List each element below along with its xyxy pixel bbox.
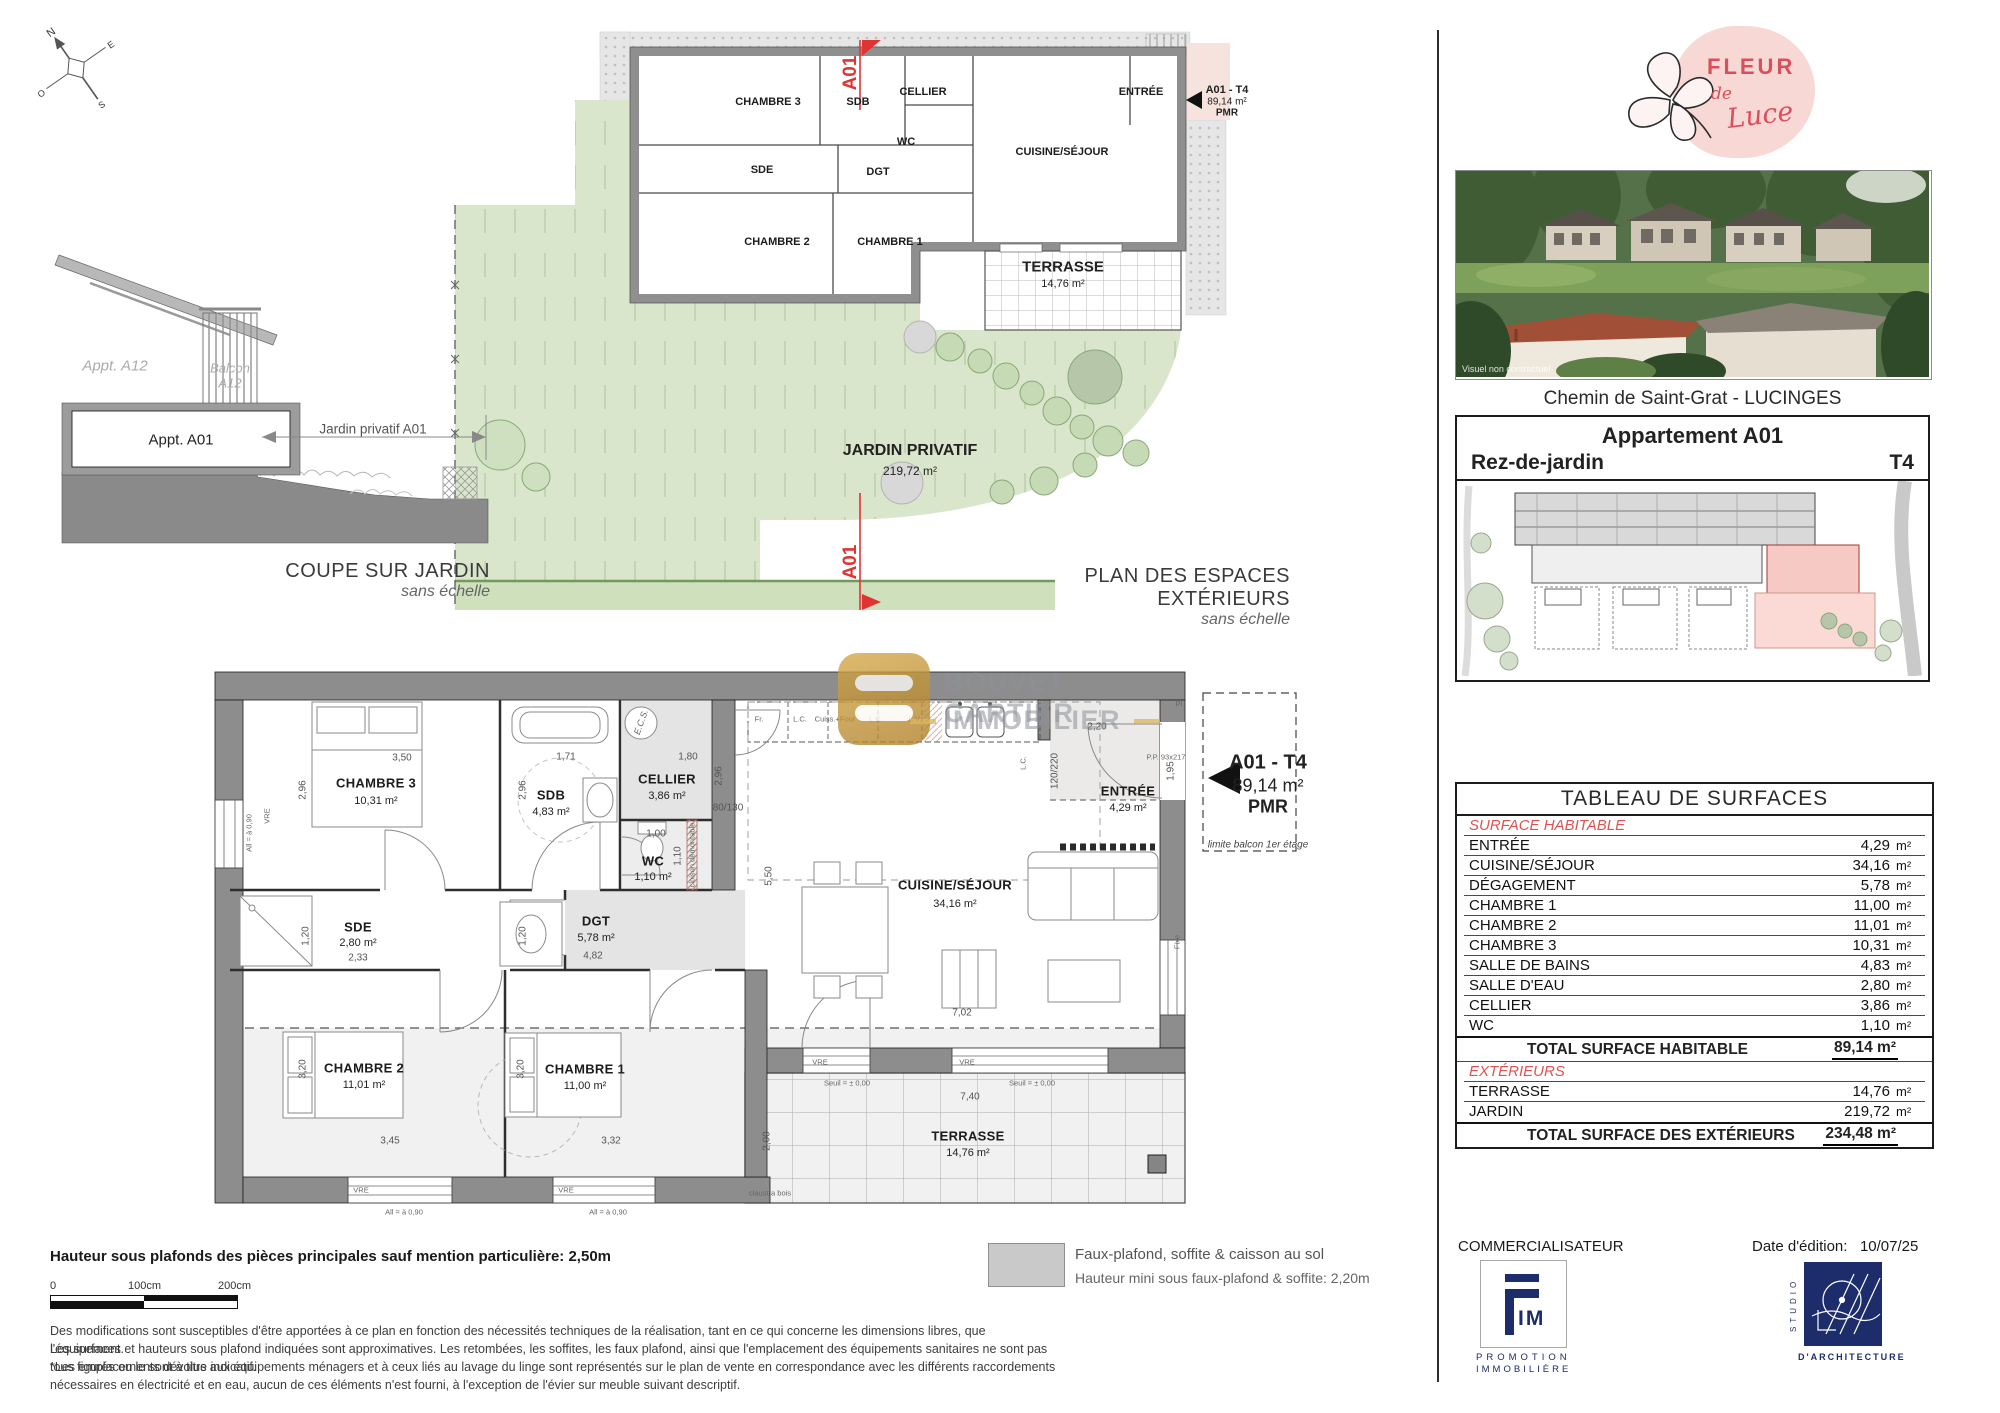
ext-room-entree: ENTRÉE bbox=[1119, 86, 1164, 98]
surface-section-exterieurs: EXTÉRIEURS bbox=[1457, 1061, 1932, 1082]
dim-200: 2,00 bbox=[762, 1131, 773, 1150]
dim-171: 1,71 bbox=[556, 752, 575, 763]
row-value: 10,31 bbox=[1826, 936, 1890, 956]
row-value: 4,83 bbox=[1826, 956, 1890, 976]
table-row: DÉGAGEMENT5,78m² bbox=[1457, 876, 1932, 896]
total-habitable-value: 89,14 m² bbox=[1832, 1039, 1898, 1060]
ext-room-sdb: SDB bbox=[846, 96, 869, 108]
dim-pp: P.P. 93x217 bbox=[1147, 753, 1186, 762]
edition-date-label: Date d'édition: bbox=[1752, 1238, 1847, 1255]
row-value: 14,76 bbox=[1826, 1082, 1890, 1102]
total-habitable-label: TOTAL SURFACE HABITABLE bbox=[1527, 1041, 1832, 1059]
room-label-cellier: CELLIER bbox=[638, 772, 696, 787]
ext-unit-tag-area: 89,14 m² bbox=[1207, 97, 1246, 108]
note-pl: Pl bbox=[1176, 700, 1183, 709]
note-seuil-2: Seuil = ± 0,00 bbox=[1009, 1079, 1055, 1088]
unit-tag-area: 89,14 m² bbox=[1232, 776, 1303, 797]
room-area-sde: 2,80 m² bbox=[339, 937, 376, 949]
dim-296-b: 2,96 bbox=[518, 780, 529, 799]
section-marker-top: A01 bbox=[840, 56, 862, 91]
compass-icon: N E S O bbox=[28, 20, 124, 116]
surface-table-title: TABLEAU DE SURFACES bbox=[1457, 784, 1932, 816]
dim-296-a: 2,96 bbox=[298, 780, 309, 799]
note-allege-ch1: All = à 0,90 bbox=[589, 1208, 627, 1217]
studio-logo bbox=[1804, 1262, 1882, 1346]
height-note: Hauteur sous plafonds des pièces princip… bbox=[50, 1248, 611, 1265]
dim-dgt-482: 4,82 bbox=[583, 951, 602, 962]
room-label-sde: SDE bbox=[344, 920, 372, 935]
legend-sub: Hauteur mini sous faux-plafond & soffite… bbox=[1075, 1270, 1370, 1286]
note-vre-sejour1: VRE bbox=[812, 1058, 827, 1067]
room-label-sdb: SDB bbox=[537, 788, 565, 803]
fim-logo: IM bbox=[1480, 1260, 1567, 1348]
scale-bar: 0 100cm 200cm bbox=[50, 1280, 250, 1306]
title-level: Rez-de-jardin bbox=[1471, 451, 1604, 475]
ext-room-chambre3: CHAMBRE 3 bbox=[735, 96, 800, 108]
surface-section-habitable: SURFACE HABITABLE bbox=[1457, 816, 1932, 836]
row-unit: m² bbox=[1890, 1016, 1926, 1036]
edition-date-value: 10/07/25 bbox=[1860, 1238, 1918, 1255]
fim-im: IM bbox=[1518, 1307, 1545, 1331]
coupe-drawing bbox=[45, 245, 505, 565]
site-plan bbox=[1457, 481, 1924, 676]
row-label: CUISINE/SÉJOUR bbox=[1469, 856, 1826, 876]
studio-vertical: STUDIO bbox=[1789, 1264, 1798, 1346]
row-unit: m² bbox=[1890, 876, 1926, 896]
row-label: CHAMBRE 3 bbox=[1469, 936, 1826, 956]
room-label-chambre3: CHAMBRE 3 bbox=[336, 776, 416, 791]
total-ext-row: TOTAL SURFACE DES EXTÉRIEURS234,48 m² bbox=[1457, 1122, 1932, 1147]
coupe-balcon-line1: Balcon bbox=[210, 361, 250, 376]
row-unit: m² bbox=[1890, 996, 1926, 1016]
row-value: 11,01 bbox=[1826, 916, 1890, 936]
unit-tag-name: A01 - T4 bbox=[1229, 752, 1307, 775]
row-label: ENTRÉE bbox=[1469, 836, 1826, 856]
ext-terrasse-area: 14,76 m² bbox=[1041, 278, 1084, 290]
disclaimer-line4: nécessaires en électricité et en eau, au… bbox=[50, 1376, 1060, 1394]
plan-sheet: N E S O bbox=[0, 0, 2000, 1413]
note-vre-sejour2: VRE bbox=[959, 1058, 974, 1067]
dim-ch1-332: 3,32 bbox=[601, 1136, 620, 1147]
dim-100: 1,00 bbox=[646, 829, 665, 840]
ext-room-dgt: DGT bbox=[866, 166, 889, 178]
room-area-chambre3: 10,31 m² bbox=[354, 795, 397, 807]
surface-table: TABLEAU DE SURFACES SURFACE HABITABLE EN… bbox=[1455, 782, 1934, 1149]
table-row: ENTRÉE4,29m² bbox=[1457, 836, 1932, 856]
ext-room-chambre1: CHAMBRE 1 bbox=[857, 236, 922, 248]
row-value: 2,80 bbox=[1826, 976, 1890, 996]
row-value: 1,10 bbox=[1826, 1016, 1890, 1036]
table-row: CHAMBRE 111,00m² bbox=[1457, 896, 1932, 916]
room-area-dgt: 5,78 m² bbox=[577, 932, 614, 944]
room-label-dgt: DGT bbox=[582, 914, 610, 929]
coupe-caption-title: COUPE SUR JARDIN bbox=[250, 560, 490, 583]
total-ext-value: 234,48 m² bbox=[1823, 1125, 1898, 1146]
disclaimer-line3: *Les emplacements dévolus aux équipement… bbox=[50, 1358, 1060, 1376]
row-label: TERRASSE bbox=[1469, 1082, 1826, 1102]
coupe-appt-a01: Appt. A01 bbox=[148, 432, 213, 449]
note-cloison: cloison démontable bbox=[688, 823, 697, 888]
row-value: 11,00 bbox=[1826, 896, 1890, 916]
unit-tag-pmr: PMR bbox=[1248, 797, 1288, 818]
row-unit: m² bbox=[1890, 836, 1926, 856]
table-row: CHAMBRE 211,01m² bbox=[1457, 916, 1932, 936]
scale-200: 200cm bbox=[218, 1280, 251, 1292]
compass-e: E bbox=[106, 39, 117, 51]
total-habitable-row: TOTAL SURFACE HABITABLE89,14 m² bbox=[1457, 1036, 1932, 1061]
legend-swatch bbox=[988, 1243, 1065, 1287]
row-label: CELLIER bbox=[1469, 996, 1826, 1016]
dim-120220: 120/220 bbox=[1050, 753, 1061, 789]
fim-immobiliere: IMMOBILIÈRE bbox=[1476, 1364, 1570, 1375]
ext-room-sde: SDE bbox=[751, 164, 774, 176]
scale-0: 0 bbox=[50, 1280, 56, 1292]
row-label: SALLE DE BAINS bbox=[1469, 956, 1826, 976]
scale-100: 100cm bbox=[128, 1280, 161, 1292]
watermark-logo bbox=[838, 653, 930, 745]
dim-180: 1,80 bbox=[678, 752, 697, 763]
ext-room-wc: WC bbox=[897, 136, 915, 148]
table-row: TERRASSE14,76m² bbox=[1457, 1082, 1932, 1102]
total-ext-label: TOTAL SURFACE DES EXTÉRIEURS bbox=[1527, 1127, 1823, 1145]
dim-120-b: 1,20 bbox=[518, 926, 529, 945]
dim-702: 7,02 bbox=[952, 1008, 971, 1019]
dim-195: 1,95 bbox=[1166, 761, 1177, 780]
coupe-balcon-line2: A12 bbox=[218, 376, 241, 391]
note-claustra: claustra bois bbox=[749, 1189, 791, 1198]
table-row: CHAMBRE 310,31m² bbox=[1457, 936, 1932, 956]
table-row: SALLE D'EAU2,80m² bbox=[1457, 976, 1932, 996]
dim-320-b: 3,20 bbox=[516, 1059, 527, 1078]
dim-80130: 80/130 bbox=[713, 803, 744, 814]
note-allege-left: All = à 0,90 bbox=[245, 814, 254, 852]
ext-terrasse-label: TERRASSE bbox=[1022, 259, 1104, 276]
brand-name-de: de bbox=[1711, 84, 1732, 104]
row-unit: m² bbox=[1890, 1102, 1926, 1122]
table-row: WC1,10m² bbox=[1457, 1016, 1932, 1036]
commercialisateur-label: COMMERCIALISATEUR bbox=[1458, 1238, 1624, 1255]
dim-ch2-345: 3,45 bbox=[380, 1136, 399, 1147]
kitchen-lc1: L.C. bbox=[793, 715, 807, 724]
dim-296-c: 2,96 bbox=[714, 766, 725, 785]
dim-sde-233: 2,33 bbox=[348, 953, 367, 964]
dim-350: 3,50 bbox=[392, 753, 411, 764]
dim-terrasse-740: 7,40 bbox=[960, 1092, 979, 1103]
note-vre-ch2: VRE bbox=[353, 1186, 368, 1195]
section-marker-bottom: A01 bbox=[840, 545, 862, 580]
row-value: 3,86 bbox=[1826, 996, 1890, 1016]
jardin-privatif-label: JARDIN PRIVATIF bbox=[843, 442, 978, 460]
row-value: 34,16 bbox=[1826, 856, 1890, 876]
room-label-cuisine: CUISINE/SÉJOUR bbox=[898, 878, 1012, 893]
edition-date: Date d'édition: 10/07/25 bbox=[1752, 1238, 1918, 1255]
room-area-chambre1: 11,00 m² bbox=[564, 1080, 607, 1092]
project-address: Chemin de Saint-Grat - LUCINGES bbox=[1455, 388, 1930, 410]
room-area-sdb: 4,83 m² bbox=[532, 806, 569, 818]
jardin-privatif-area: 219,72 m² bbox=[883, 464, 937, 478]
project-photo-render bbox=[1456, 171, 1929, 377]
brand-logo: FLEUR de Luce bbox=[1615, 12, 1830, 162]
compass-o: O bbox=[36, 87, 47, 99]
row-unit: m² bbox=[1890, 976, 1926, 996]
row-value: 5,78 bbox=[1826, 876, 1890, 896]
ext-room-cuisine: CUISINE/SÉJOUR bbox=[1016, 146, 1109, 158]
row-label: CHAMBRE 2 bbox=[1469, 916, 1826, 936]
kitchen-fr: Fr. bbox=[755, 715, 764, 724]
ext-unit-tag-name: A01 - T4 bbox=[1206, 84, 1249, 96]
photo-disclaimer: Visuel non contractuel bbox=[1462, 364, 1550, 374]
note-allege-ch2: All = à 0,90 bbox=[385, 1208, 423, 1217]
note-limite-balcon: limite balcon 1er étage bbox=[1208, 840, 1309, 851]
watermark-line2: IMMOBILIER bbox=[944, 705, 1121, 736]
room-area-chambre2: 11,01 m² bbox=[343, 1079, 386, 1091]
coupe-caption: COUPE SUR JARDIN sans échelle bbox=[250, 560, 490, 601]
row-value: 4,29 bbox=[1826, 836, 1890, 856]
room-label-wc: WC bbox=[642, 854, 664, 869]
table-row: SALLE DE BAINS4,83m² bbox=[1457, 956, 1932, 976]
ext-plan-caption: PLAN DES ESPACES EXTÉRIEURS sans échelle bbox=[1000, 565, 1290, 629]
room-area-cuisine: 34,16 m² bbox=[933, 898, 976, 910]
ext-room-chambre2: CHAMBRE 2 bbox=[744, 236, 809, 248]
room-area-cellier: 3,86 m² bbox=[648, 790, 685, 802]
row-unit: m² bbox=[1890, 956, 1926, 976]
ext-plan-caption-title: PLAN DES ESPACES EXTÉRIEURS bbox=[1000, 565, 1290, 611]
room-area-wc: 1,10 m² bbox=[634, 871, 671, 883]
row-unit: m² bbox=[1890, 896, 1926, 916]
note-fixe: Fixe bbox=[1173, 935, 1182, 949]
project-photo: Visuel non contractuel bbox=[1455, 170, 1932, 380]
legend-title: Faux-plafond, soffite & caisson au sol bbox=[1075, 1246, 1324, 1263]
row-value: 219,72 bbox=[1826, 1102, 1890, 1122]
room-label-entree: ENTRÉE bbox=[1101, 784, 1156, 799]
fim-promotion: PROMOTION bbox=[1476, 1352, 1570, 1363]
row-label: SALLE D'EAU bbox=[1469, 976, 1826, 996]
dim-120-a: 1,20 bbox=[301, 926, 312, 945]
note-lc-tall: L.C. bbox=[1019, 756, 1028, 770]
compass-n: N bbox=[45, 26, 58, 40]
dim-110: 1,10 bbox=[673, 846, 684, 865]
ext-room-cellier: CELLIER bbox=[899, 86, 946, 98]
row-label: JARDIN bbox=[1469, 1102, 1826, 1122]
brand-name-fleur: FLEUR bbox=[1707, 54, 1795, 80]
row-label: DÉGAGEMENT bbox=[1469, 876, 1826, 896]
studio-sub: D'ARCHITECTURE bbox=[1798, 1352, 1888, 1362]
coupe-jardin-dim: Jardin privatif A01 bbox=[319, 422, 426, 437]
title-type: T4 bbox=[1889, 451, 1914, 475]
table-row: JARDIN219,72m² bbox=[1457, 1102, 1932, 1122]
dim-550: 5,50 bbox=[764, 866, 775, 885]
title-apartment: Appartement A01 bbox=[1457, 423, 1928, 449]
table-row: CUISINE/SÉJOUR34,16m² bbox=[1457, 856, 1932, 876]
row-unit: m² bbox=[1890, 1082, 1926, 1102]
ext-plan-caption-scale: sans échelle bbox=[1000, 611, 1290, 629]
row-label: CHAMBRE 1 bbox=[1469, 896, 1826, 916]
note-vre-left: VRE bbox=[263, 808, 272, 823]
exterior-spaces-plan bbox=[440, 25, 1250, 620]
ext-unit-tag-pmr: PMR bbox=[1216, 108, 1238, 119]
note-vre-ch1: VRE bbox=[558, 1186, 573, 1195]
room-area-entree: 4,29 m² bbox=[1109, 802, 1146, 814]
room-area-terrasse: 14,76 m² bbox=[946, 1147, 989, 1159]
compass-s: S bbox=[96, 99, 107, 111]
room-label-terrasse: TERRASSE bbox=[931, 1129, 1004, 1144]
row-unit: m² bbox=[1890, 936, 1926, 956]
dim-320-a: 3,20 bbox=[298, 1059, 309, 1078]
divider bbox=[1437, 30, 1439, 1382]
row-unit: m² bbox=[1890, 916, 1926, 936]
title-block: Appartement A01 Rez-de-jardin T4 bbox=[1455, 415, 1930, 682]
coupe-caption-scale: sans échelle bbox=[250, 583, 490, 601]
room-label-chambre1: CHAMBRE 1 bbox=[545, 1062, 625, 1077]
note-seuil-1: Seuil = ± 0,00 bbox=[824, 1079, 870, 1088]
table-row: CELLIER3,86m² bbox=[1457, 996, 1932, 1016]
row-unit: m² bbox=[1890, 856, 1926, 876]
room-label-chambre2: CHAMBRE 2 bbox=[324, 1061, 404, 1076]
coupe-appt-a12: Appt. A12 bbox=[82, 358, 147, 375]
row-label: WC bbox=[1469, 1016, 1826, 1036]
